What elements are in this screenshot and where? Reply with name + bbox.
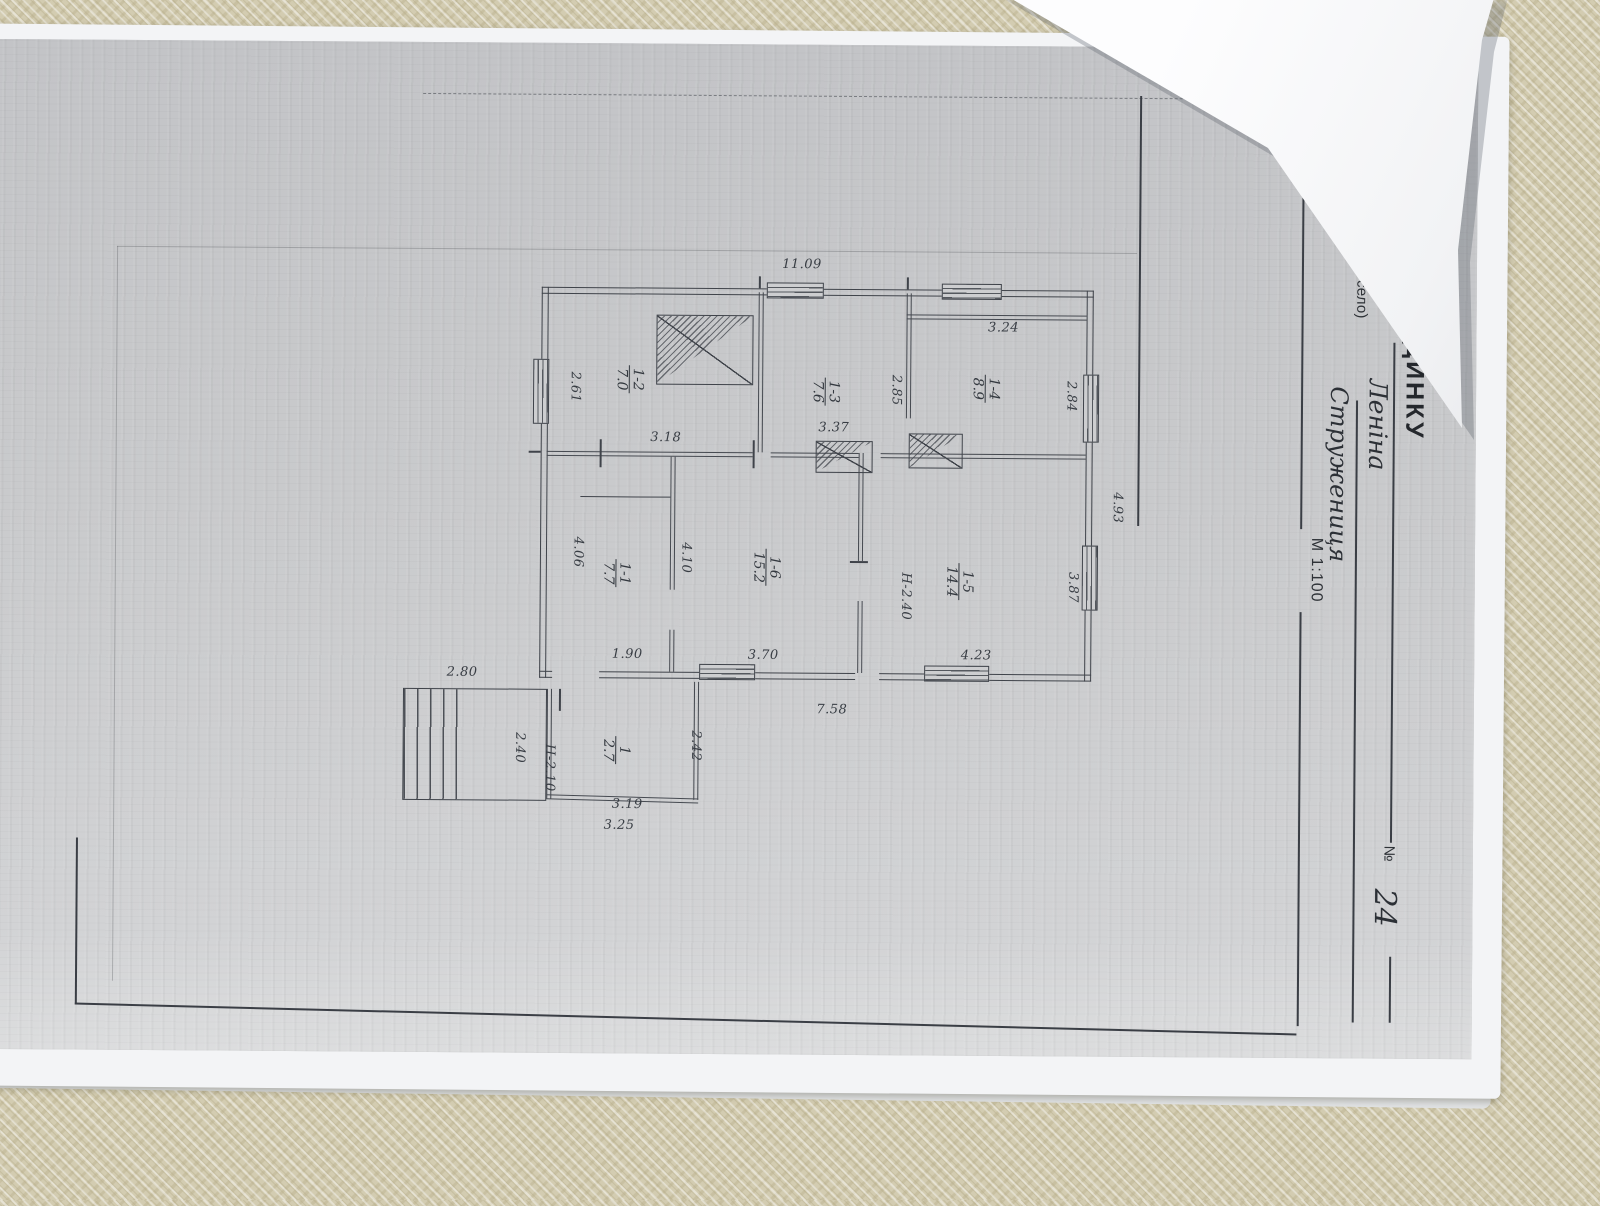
room-number: 1-2 <box>630 368 645 391</box>
room-number: 1-4 <box>986 378 1001 401</box>
house-number-label: № <box>1380 846 1397 862</box>
interior-wall <box>547 451 753 457</box>
room-area: 14.4 <box>943 563 959 600</box>
room-area: 7.7 <box>600 559 616 587</box>
door-tick <box>600 439 602 467</box>
room-number: 1-3 <box>826 380 841 403</box>
door-tick <box>559 689 561 711</box>
dim-annex-height: 2.42 <box>688 730 703 761</box>
interior-wall-13-14 <box>906 293 912 418</box>
stove-symbol <box>656 315 753 386</box>
interior-wall-11-16 <box>670 457 676 590</box>
stove-symbol <box>816 441 873 473</box>
dim-room12-width: 3.18 <box>650 430 681 445</box>
dim-hall-width: 3.37 <box>818 420 849 435</box>
wall-stub <box>907 277 909 289</box>
dim-porch-width: 2.80 <box>447 665 478 680</box>
header-separator-line <box>1137 96 1142 526</box>
room-number: 1-1 <box>616 562 631 585</box>
door-tick <box>753 440 755 468</box>
outer-wall-bottom <box>755 672 855 680</box>
window-symbol <box>767 282 824 298</box>
dim-room16-width: 3.70 <box>748 648 779 663</box>
room-label-1-4: 1-4 8.9 <box>969 375 1000 403</box>
wall-stub <box>529 451 541 453</box>
room-label-annex: 1 2.7 <box>600 736 631 764</box>
room-area: 15.2 <box>750 549 766 586</box>
window-symbol <box>1082 546 1098 611</box>
city-underline <box>1352 400 1358 1022</box>
room-label-1-2: 1-2 7.0 <box>613 365 644 393</box>
dim-right-outer: 4.93 <box>1110 492 1125 523</box>
dim-annex-width-2: 3.25 <box>604 818 635 833</box>
dim-room16-height: 4.10 <box>678 542 693 573</box>
outer-wall-bottom <box>539 671 552 678</box>
number-underline <box>1389 957 1391 1023</box>
room-number: 1-5 <box>959 570 974 593</box>
frame-line-left <box>75 838 78 1005</box>
city-field-value: Стружениця <box>1324 386 1353 562</box>
dim-room11-height: 4.06 <box>570 537 585 568</box>
room-number: 1-6 <box>766 556 781 579</box>
interior-wall-16-15 <box>857 601 863 673</box>
dim-ceiling-height-annex: Н-2.10 <box>542 744 557 792</box>
dim-room13-height: 2.85 <box>889 375 904 406</box>
wall-stub <box>580 496 670 498</box>
window-symbol <box>942 284 1002 300</box>
room-label-1-5: 1-5 14.4 <box>943 563 974 600</box>
dim-room12-height: 2.61 <box>568 371 583 402</box>
outer-wall-bottom <box>599 671 699 679</box>
scale-label: М 1:100 <box>1307 538 1325 603</box>
outer-wall-right <box>1084 291 1094 682</box>
frame-line-inner-v <box>112 246 118 981</box>
window-symbol <box>1083 375 1099 443</box>
dim-room14-height: 2.84 <box>1063 381 1078 412</box>
dim-overall-top: 11.09 <box>782 257 822 272</box>
room-label-1-1: 1-1 7.7 <box>600 559 631 587</box>
frame-line-bottom <box>75 1003 1297 1036</box>
dim-porch-height: 2.40 <box>512 732 527 763</box>
room-area: 7.0 <box>613 365 629 393</box>
stove-symbol <box>909 433 963 468</box>
room-area: 2.7 <box>600 736 616 764</box>
interior-wall-12-13 <box>758 292 764 452</box>
dim-room14-width: 3.24 <box>988 320 1019 335</box>
outer-wall-bottom <box>989 674 1091 682</box>
dim-annex-width-1: 3.19 <box>612 797 643 812</box>
room-label-1-3: 1-3 7.6 <box>809 378 840 406</box>
interior-wall-11-16 <box>669 630 674 672</box>
dim-overall-bottom: 7.58 <box>816 702 847 717</box>
frame-line-inner-h <box>117 246 1137 254</box>
window-symbol <box>699 664 755 680</box>
door-tick <box>850 561 868 563</box>
photo-of-floor-plan-document: { "colors":{"table_beige":"#d3ccb1","pap… <box>0 0 1600 1200</box>
porch-steps <box>403 689 460 799</box>
room-area: 7.6 <box>809 378 825 406</box>
window-symbol <box>924 665 989 681</box>
photocopy-plan-sheet: 1-2 7.0 1-3 7.6 1-4 8.9 1-1 7.7 1-6 15.2… <box>0 39 1479 1060</box>
dim-room11-width: 1.90 <box>612 647 643 662</box>
dim-room15-height: 3.87 <box>1065 572 1080 603</box>
outer-wall-bottom <box>879 673 924 680</box>
window-symbol <box>533 359 549 424</box>
room-label-1-6: 1-6 15.2 <box>750 549 781 586</box>
dim-room15-width: 4.23 <box>961 648 992 663</box>
room-number: 1 <box>616 746 631 755</box>
scale-underline <box>1297 612 1301 1026</box>
outer-wall-left <box>539 287 549 678</box>
room-area: 8.9 <box>969 375 985 403</box>
street-field-value: Леніна <box>1363 379 1393 471</box>
wall-stub <box>759 276 761 288</box>
dim-ceiling-height-main: Н-2.40 <box>898 572 913 620</box>
house-number-value: 24 <box>1367 888 1402 926</box>
